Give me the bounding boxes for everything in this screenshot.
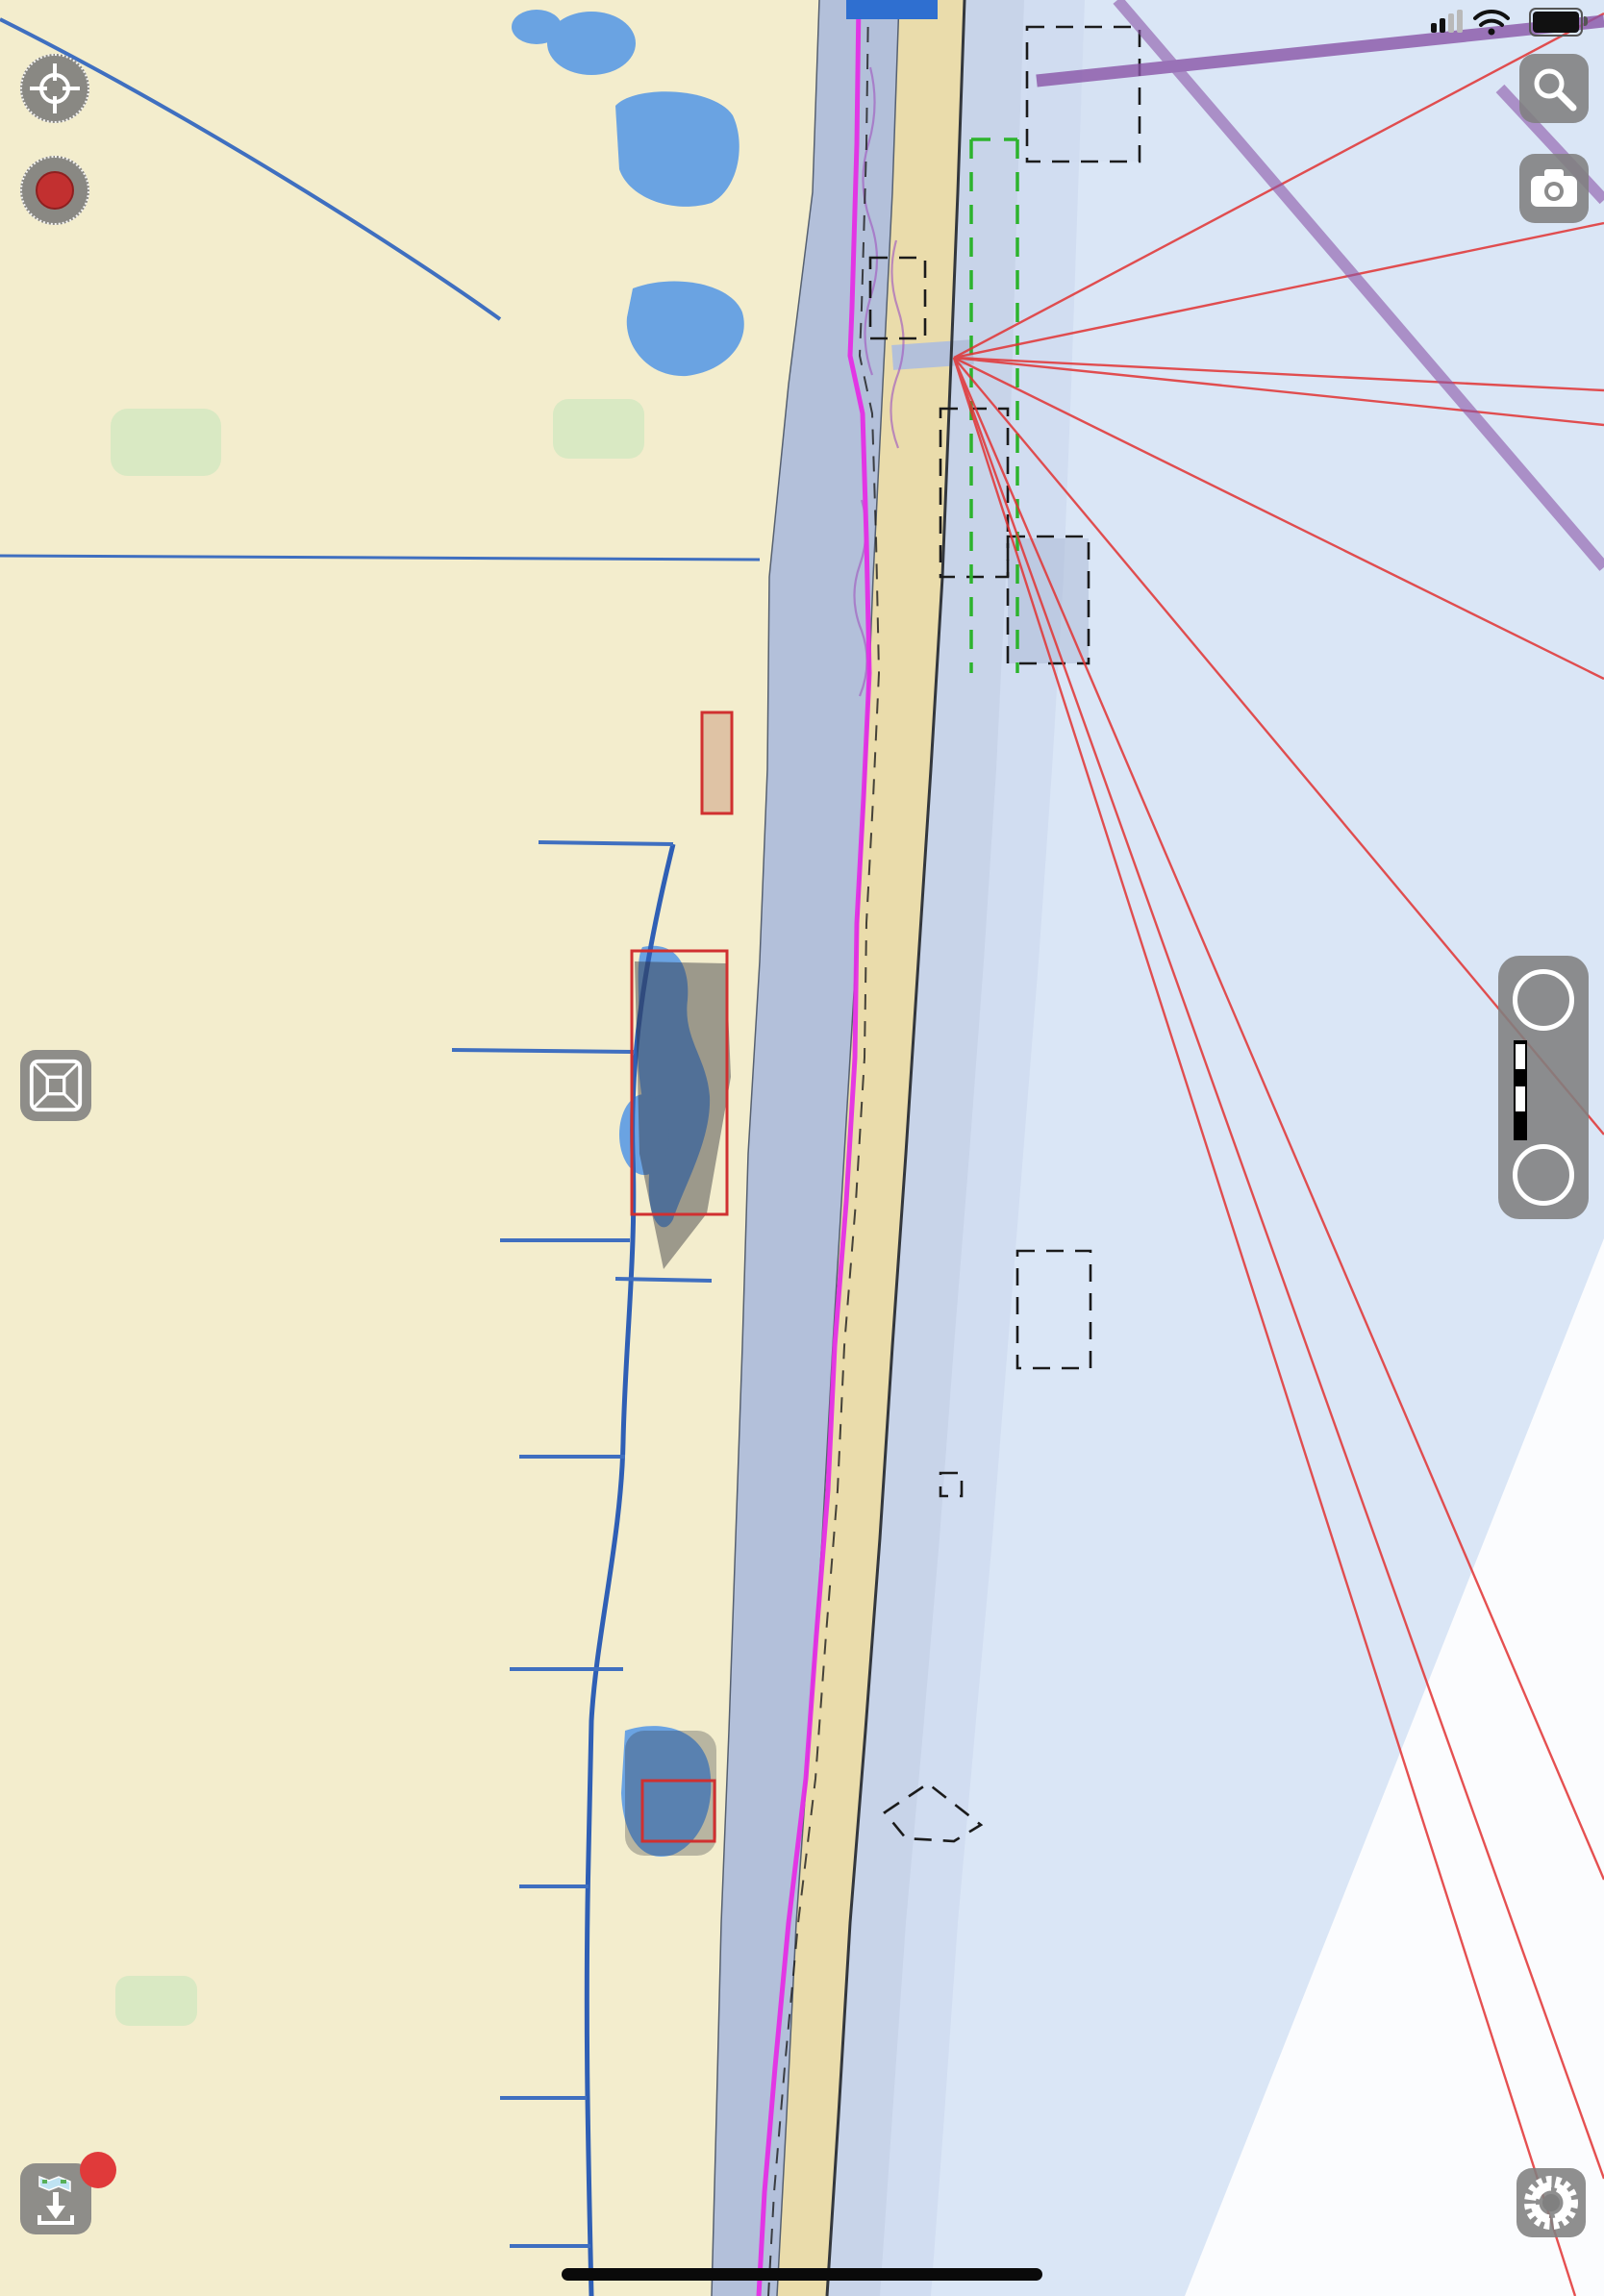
status-time-date [29,10,79,44]
settings-button[interactable] [1516,2168,1586,2237]
battery-icon [1529,8,1583,37]
scale-bar [1514,1040,1527,1140]
perspective-icon [26,1056,86,1115]
download-map-icon [28,2171,84,2227]
record-icon [34,169,76,212]
home-indicator[interactable] [562,2268,1042,2281]
perspective-view-button[interactable] [20,1050,91,1121]
zoom-panel [1498,956,1589,1219]
wifi-icon [1473,9,1510,36]
zoom-out-button[interactable] [1513,1144,1574,1206]
search-button[interactable] [1519,54,1589,123]
download-count-badge [80,2152,116,2188]
record-track-button[interactable] [20,156,89,225]
camera-capture-button[interactable] [1519,154,1589,223]
gear-icon [1522,2174,1580,2232]
chart-extent-rects [632,712,732,1841]
chartplotter-app [0,0,1604,2296]
status-bar [0,0,1604,52]
lakes [512,10,744,1857]
nautical-chart-map[interactable] [0,0,1604,2296]
cellular-signal-icon [1431,10,1464,35]
search-icon [1529,63,1579,113]
crosshair-icon [27,61,83,116]
chart-download-button[interactable] [20,2163,91,2234]
gps-center-button[interactable] [20,54,89,123]
camera-icon [1529,166,1579,211]
zoom-in-button[interactable] [1513,969,1574,1031]
